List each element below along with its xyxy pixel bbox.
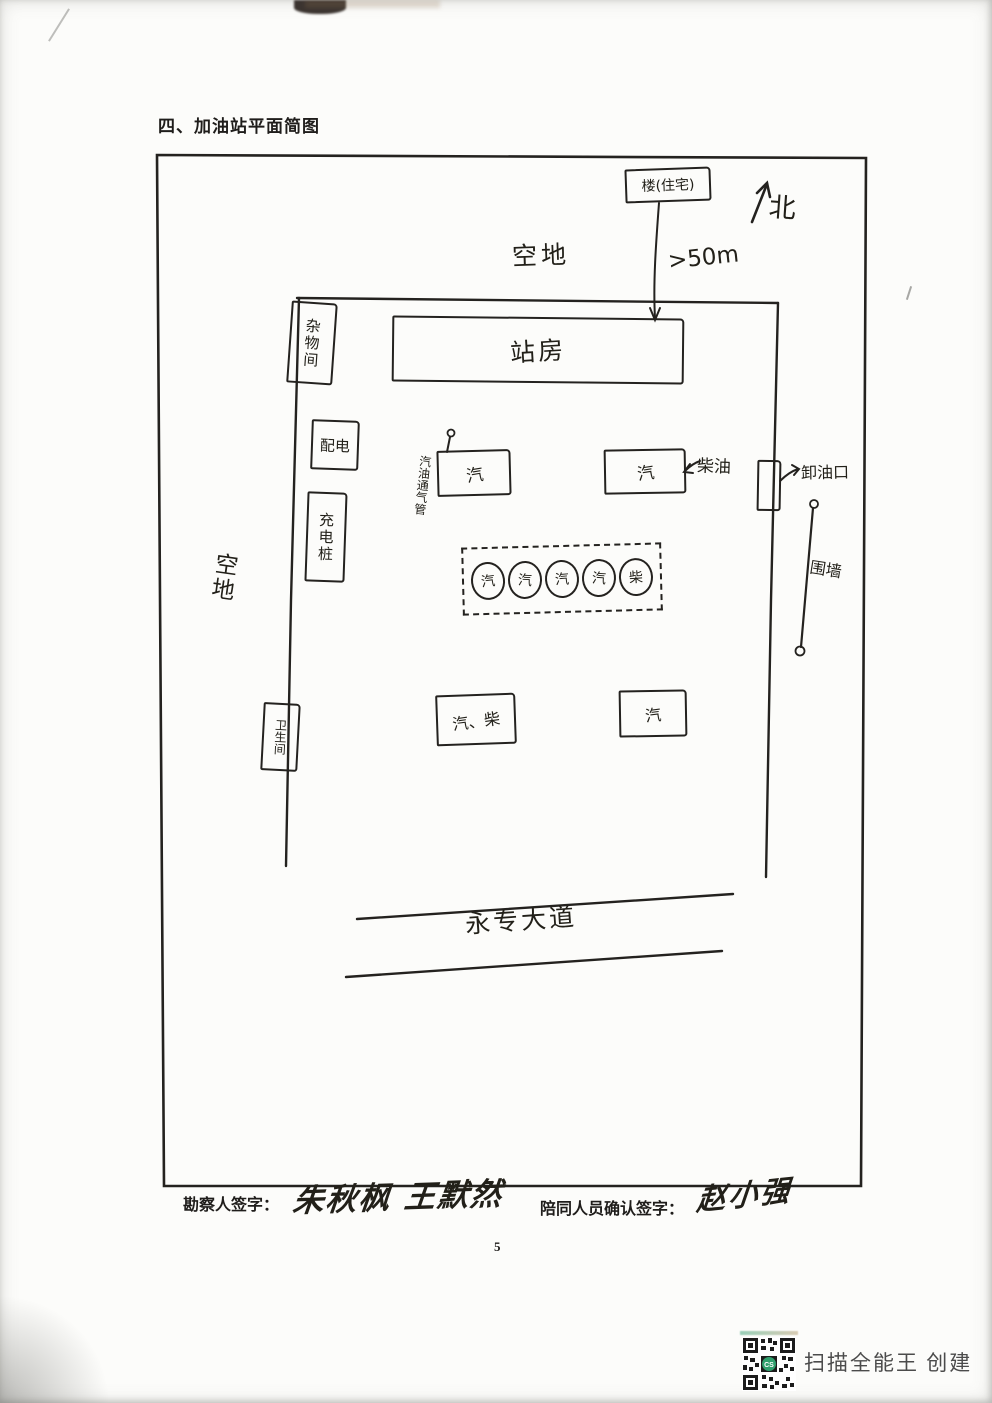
companion-signature: 赵小强 (695, 1167, 795, 1220)
storage-room-label: 杂物间 (300, 317, 325, 369)
scan-color-sliver (740, 1331, 798, 1335)
road-label: 永专大道 (464, 897, 578, 941)
open-space-top-label: 空地 (511, 235, 570, 273)
unloading-arrow-line (780, 469, 798, 481)
dispenser-3-label: 汽 (554, 568, 570, 589)
dispenser-1: 汽 (469, 560, 508, 602)
wall-label: 围墙 (808, 554, 843, 583)
tank-lower-right-box: 汽 (619, 689, 688, 737)
station-house-label: 站房 (509, 330, 567, 369)
tank-lower-right-label: 汽 (644, 701, 663, 727)
outer-frame (157, 155, 866, 1186)
station-house-box: 站房 (392, 315, 685, 384)
scanned-document-page: 四、加油站平面简图 (0, 0, 992, 1403)
north-arrow-line (752, 184, 767, 222)
page-number: 5 (494, 1239, 501, 1255)
tank-lower-left-box: 汽、柴 (435, 693, 517, 747)
north-label: 北 (768, 185, 798, 226)
charging-pile-label: 充电桩 (315, 511, 338, 563)
restroom-label: 卫生间 (271, 719, 290, 756)
scan-shadow-corner (0, 1295, 110, 1403)
scan-smear-top (305, 0, 440, 8)
dispenser-island: 汽 汽 汽 汽 柴 (461, 542, 663, 615)
north-arrow-head (757, 183, 770, 197)
wall-post-top (810, 500, 818, 508)
dispenser-2-label: 汽 (518, 570, 533, 591)
inner-wall-right (766, 303, 778, 877)
open-space-left-label: 空地 (202, 550, 243, 604)
companion-signature-label: 陪同人员确认签字： (540, 1195, 684, 1219)
power-room-box: 配电 (310, 419, 360, 471)
dispenser-4: 汽 (581, 558, 617, 598)
dispenser-4-label: 汽 (591, 568, 606, 589)
scan-mark-right (906, 286, 912, 300)
distance-label: >50m (667, 241, 740, 274)
dispenser-5: 柴 (617, 557, 653, 597)
dispenser-5-label: 柴 (628, 567, 643, 588)
road-line-bottom (346, 951, 722, 977)
surveyor-signature-label: 勘察人签字： (183, 1191, 279, 1215)
restroom-box: 卫生间 (260, 702, 301, 772)
tank-upper-right-box: 汽 (604, 448, 687, 494)
tank-upper-left-box: 汽 (436, 449, 511, 497)
inner-wall-top (297, 298, 778, 303)
unloading-port-label: 卸油口 (801, 459, 849, 484)
section-title: 四、加油站平面简图 (158, 112, 320, 137)
scanner-credit-text: 扫描全能王 创建 (804, 1347, 972, 1377)
dispenser-3: 汽 (544, 559, 581, 600)
unloading-port-box (757, 460, 782, 511)
tank-upper-left-label: 汽 (464, 459, 485, 486)
dispenser-2: 汽 (507, 560, 543, 599)
surveyor-signature: 朱秋枫 王默然 (291, 1168, 506, 1221)
distance-arrow-line (654, 203, 659, 318)
power-room-label: 配电 (320, 434, 351, 456)
qr-code-icon: CS (742, 1337, 796, 1391)
wall-post-bottom (796, 647, 805, 656)
residence-building-label: 楼(住宅) (641, 174, 695, 196)
scan-smudge-top (294, 0, 346, 14)
tank-lower-left-label: 汽、柴 (451, 704, 502, 734)
charging-pile-box: 充电桩 (304, 491, 347, 582)
diesel-label: 柴油 (697, 451, 732, 477)
vent-pipe-label: 汽油通气管 (410, 455, 432, 542)
unloading-arrow-head (792, 465, 799, 475)
vent-pipe-cap (448, 430, 455, 437)
tank-upper-right-label: 汽 (635, 458, 656, 485)
scan-mark-topleft (48, 8, 70, 41)
svg-text:CS: CS (764, 1362, 774, 1369)
storage-room-box: 杂物间 (286, 300, 338, 385)
inner-wall-left (286, 298, 299, 866)
dispenser-1-label: 汽 (480, 570, 496, 592)
residence-building-box: 楼(住宅) (624, 167, 711, 204)
